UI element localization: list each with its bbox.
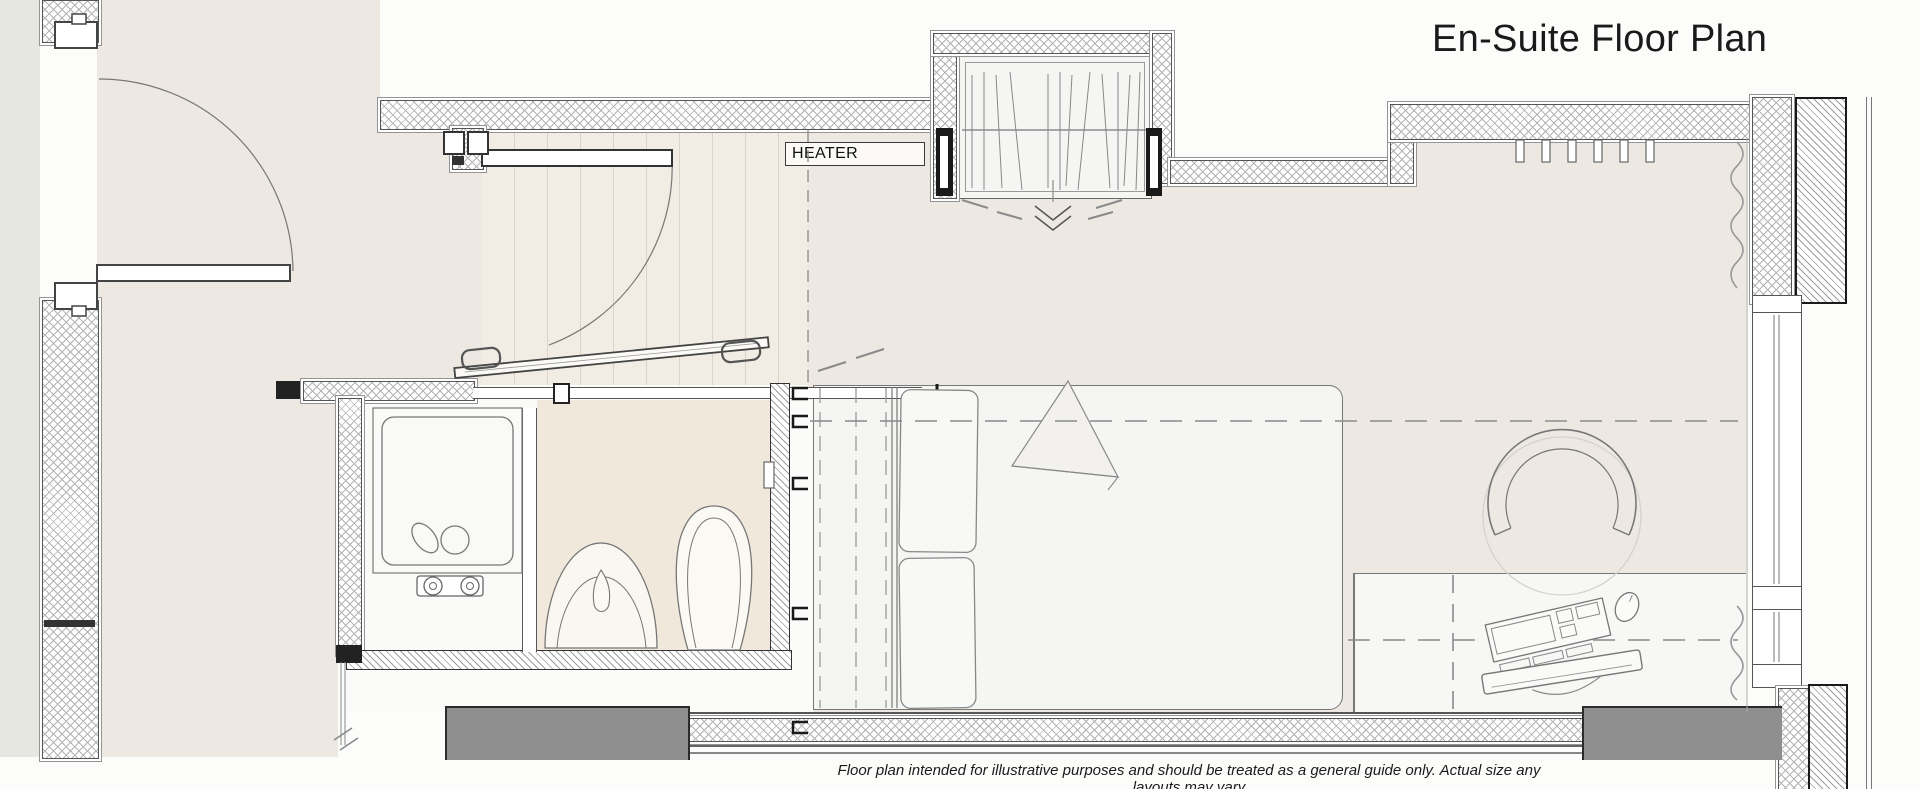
disclaimer-text: Floor plan intended for illustrative pur…	[814, 762, 1564, 789]
bed-details	[820, 381, 1118, 709]
screen-line	[334, 662, 358, 750]
window-glazing	[1747, 138, 1779, 712]
curtain-squiggle	[1731, 142, 1743, 288]
sliding-door	[454, 337, 884, 378]
shower-valve	[417, 576, 483, 596]
pillow	[899, 389, 978, 708]
adjacent-room-door	[44, 14, 293, 627]
curtain-squiggle	[1731, 606, 1743, 700]
sink	[545, 543, 657, 648]
mouse	[1611, 589, 1643, 625]
office-chair	[1483, 430, 1641, 595]
shower	[373, 408, 522, 596]
coat-hooks	[1516, 140, 1654, 162]
page-title: En-Suite Floor Plan	[1432, 18, 1767, 61]
floor-plan: HEATER	[0, 0, 1920, 789]
toilet	[676, 506, 751, 650]
wardrobe-contents	[936, 72, 1162, 196]
entry-door	[444, 132, 672, 345]
wardrobe-bifold-marks	[962, 180, 1122, 230]
blanket-fold	[1012, 381, 1118, 490]
towel-holder	[764, 462, 774, 488]
plan-lineart	[0, 0, 1920, 789]
